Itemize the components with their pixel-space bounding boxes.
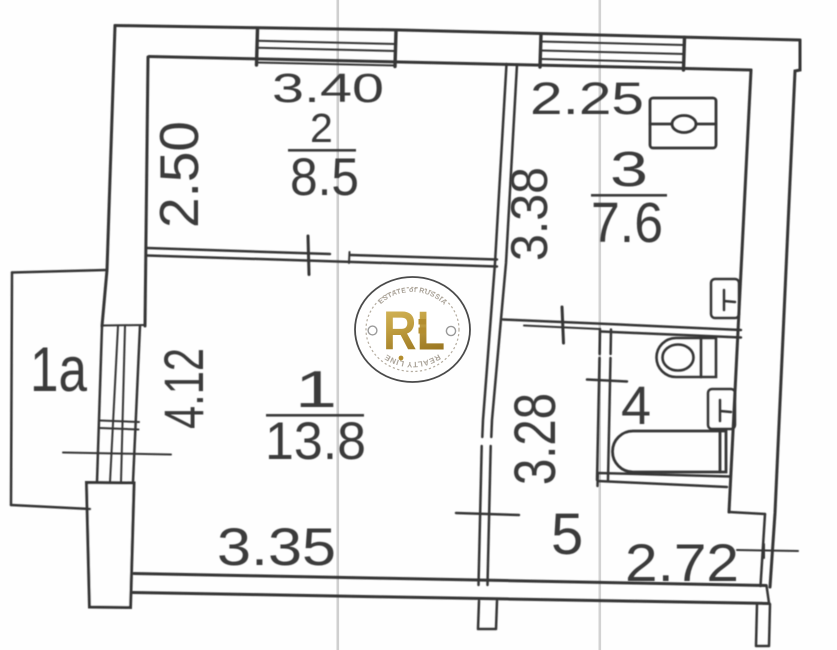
svg-text:2: 2 — [310, 105, 333, 151]
svg-text:4: 4 — [621, 376, 651, 436]
svg-text:4.12: 4.12 — [152, 348, 215, 429]
svg-text:13.8: 13.8 — [265, 412, 366, 471]
svg-text:RL: RL — [383, 300, 445, 362]
svg-text:3.28: 3.28 — [503, 393, 568, 485]
svg-text:2.72: 2.72 — [625, 534, 739, 593]
svg-text:7.6: 7.6 — [591, 191, 663, 255]
svg-text:1a: 1a — [30, 335, 88, 405]
svg-text:2.25: 2.25 — [530, 73, 644, 124]
svg-text:3.35: 3.35 — [217, 518, 336, 577]
svg-text:5: 5 — [551, 502, 583, 567]
svg-text:3.38: 3.38 — [501, 167, 559, 261]
svg-text:1: 1 — [295, 361, 337, 419]
svg-text:8.5: 8.5 — [290, 148, 359, 207]
svg-text:2.50: 2.50 — [148, 121, 210, 228]
svg-text:3: 3 — [610, 143, 648, 197]
